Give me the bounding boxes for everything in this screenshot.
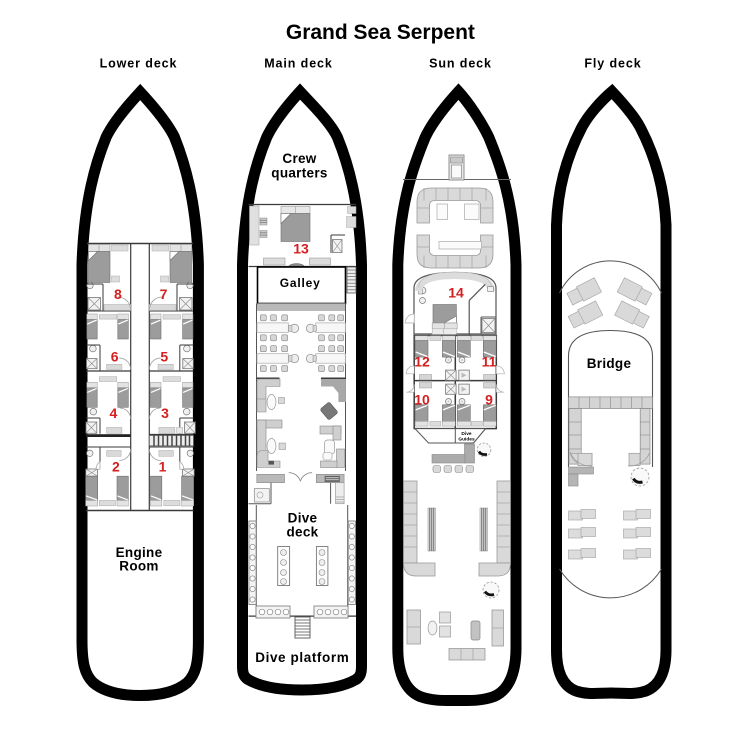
svg-text:Grand Sea Serpent: Grand Sea Serpent — [286, 21, 475, 44]
svg-text:Crew: Crew — [282, 151, 316, 166]
svg-text:11: 11 — [482, 354, 497, 370]
svg-text:quarters: quarters — [271, 165, 327, 180]
svg-text:13: 13 — [293, 240, 309, 256]
svg-text:Fly deck: Fly deck — [584, 57, 641, 71]
svg-text:Dive: Dive — [288, 511, 318, 526]
svg-text:7: 7 — [160, 286, 168, 302]
svg-text:Bridge: Bridge — [587, 356, 632, 371]
svg-text:1: 1 — [159, 459, 167, 475]
svg-text:4: 4 — [110, 405, 118, 421]
svg-text:Galley: Galley — [280, 276, 321, 290]
svg-text:Lower deck: Lower deck — [100, 57, 178, 71]
svg-text:Room: Room — [119, 559, 158, 574]
svg-text:deck: deck — [287, 525, 319, 540]
svg-text:Sun deck: Sun deck — [429, 57, 492, 71]
svg-text:8: 8 — [114, 286, 122, 302]
svg-text:6: 6 — [111, 349, 119, 365]
svg-text:Main deck: Main deck — [264, 57, 333, 71]
svg-text:Guides: Guides — [458, 437, 475, 443]
svg-text:Dive platform: Dive platform — [255, 650, 349, 665]
svg-text:12: 12 — [414, 354, 430, 370]
svg-text:14: 14 — [448, 285, 464, 301]
svg-text:2: 2 — [112, 459, 120, 475]
svg-text:9: 9 — [485, 391, 493, 407]
svg-text:10: 10 — [414, 391, 430, 407]
svg-text:5: 5 — [160, 349, 168, 365]
svg-text:Dive: Dive — [461, 431, 471, 437]
svg-text:3: 3 — [161, 405, 169, 421]
